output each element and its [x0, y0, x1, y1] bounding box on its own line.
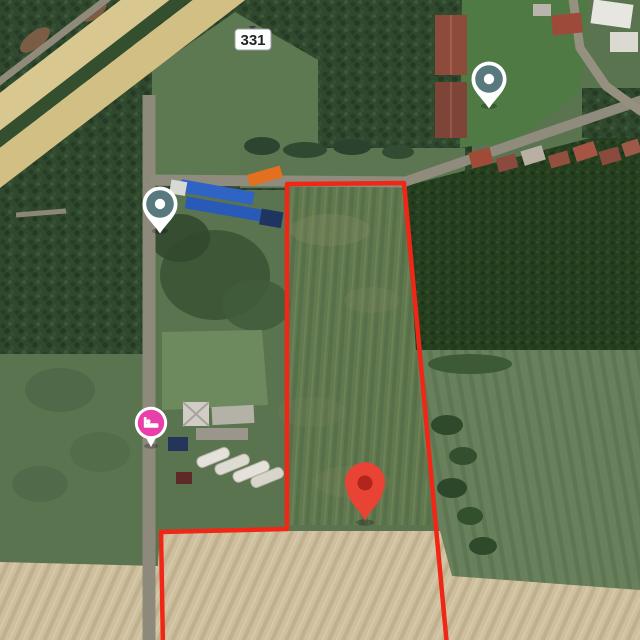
dark-blue-shed	[168, 437, 188, 451]
house-roof	[610, 32, 638, 52]
road-shield-331: 331	[235, 26, 271, 50]
red-pin-dot	[358, 476, 373, 491]
road-shield-label: 331	[240, 32, 265, 49]
field-east	[415, 350, 640, 600]
house-roof	[551, 12, 583, 35]
shed-roof	[196, 428, 248, 440]
maroon-shed	[176, 472, 192, 484]
mown-field-west	[162, 330, 268, 410]
shed-roof	[212, 405, 255, 425]
map-canvas[interactable]: 331	[0, 0, 640, 640]
forest-west	[0, 182, 150, 354]
satellite-map: 331	[0, 0, 640, 640]
